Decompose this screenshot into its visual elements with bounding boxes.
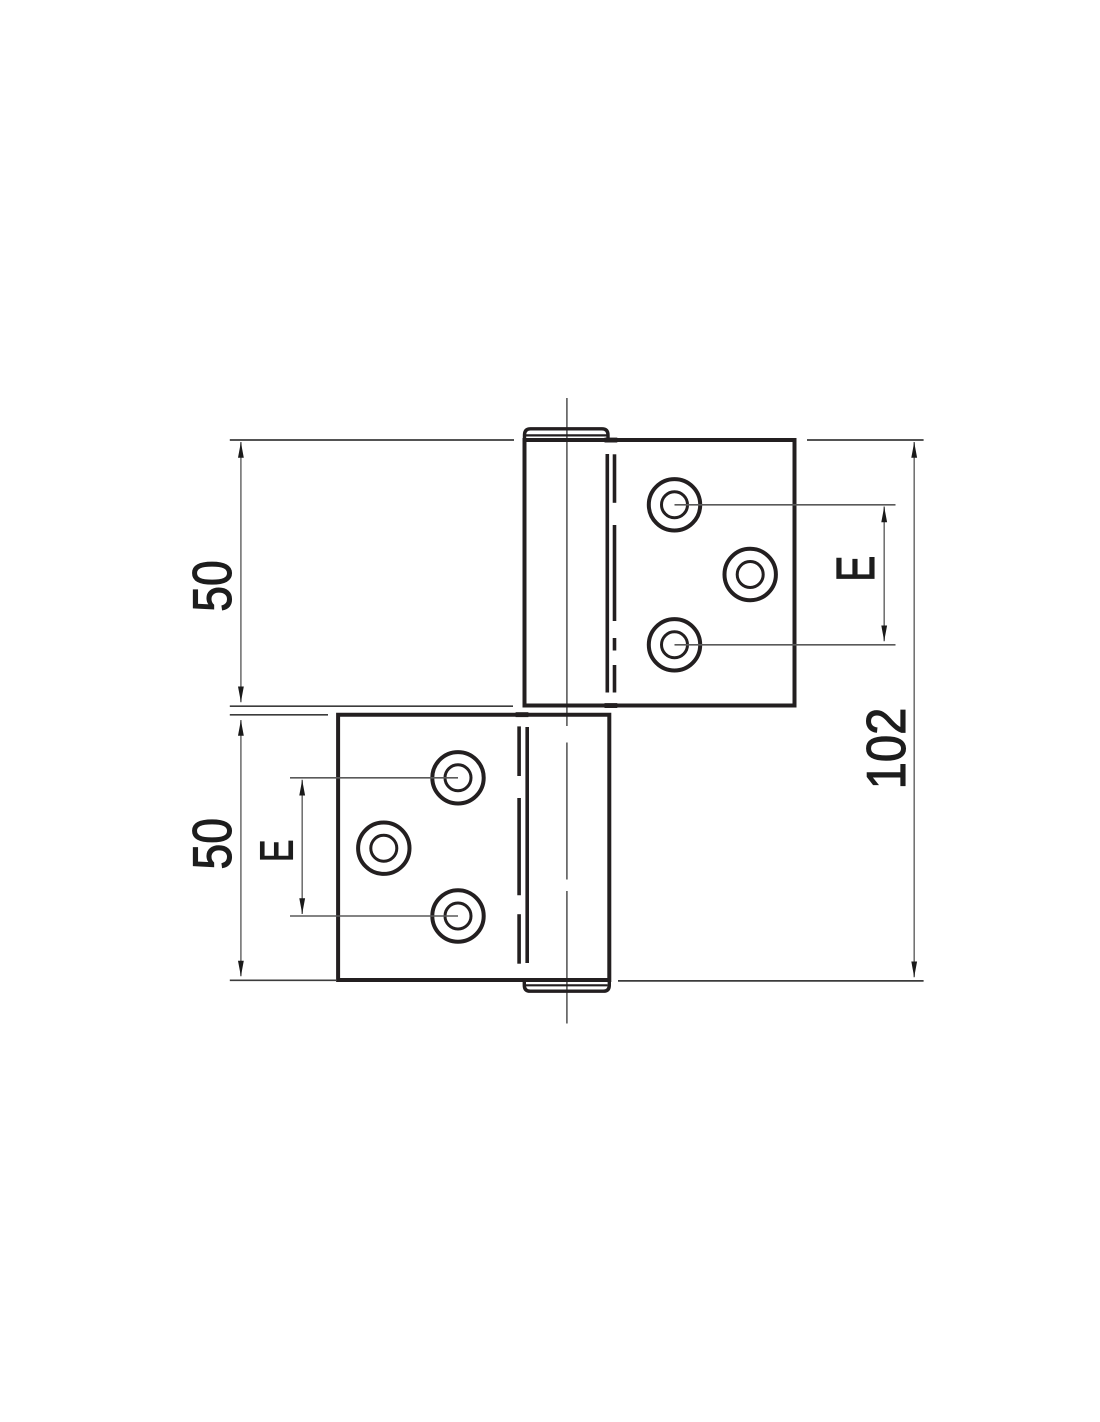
- svg-text:50: 50: [181, 560, 242, 612]
- svg-text:E: E: [825, 556, 886, 582]
- svg-text:E: E: [251, 840, 302, 862]
- svg-text:50: 50: [181, 818, 242, 870]
- svg-text:102: 102: [856, 708, 917, 790]
